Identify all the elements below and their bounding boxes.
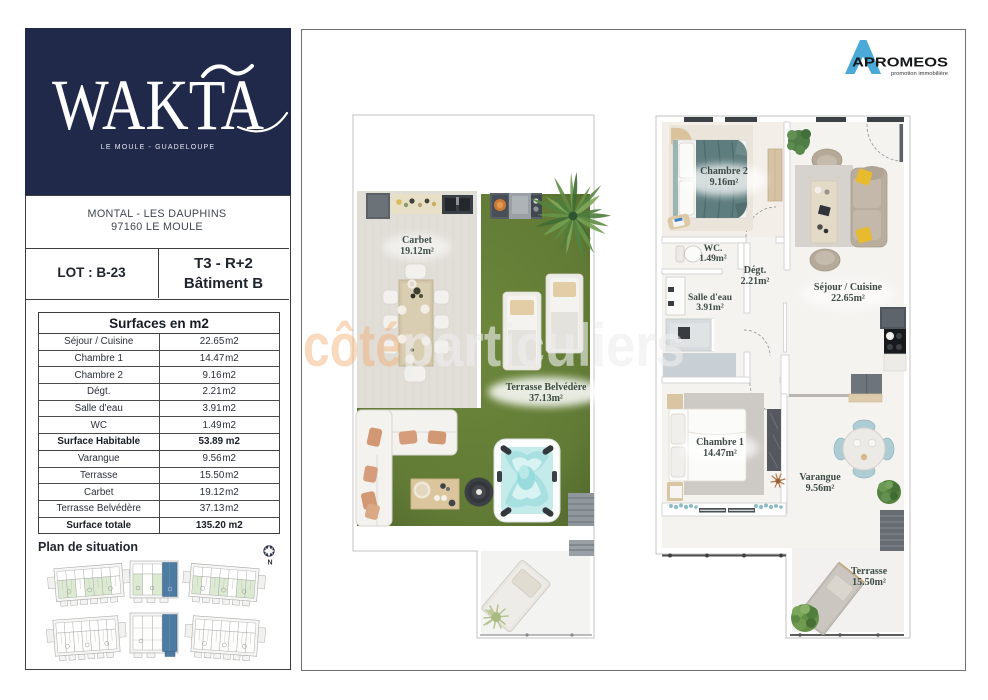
svg-text:Dégt.: Dégt. [744, 265, 767, 276]
svg-text:Terrasse: Terrasse [851, 566, 888, 577]
svg-text:côtéparticuliers: côtéparticuliers [303, 312, 685, 379]
svg-text:37.13m²: 37.13m² [529, 393, 563, 404]
svg-text:9.16m²: 9.16m² [710, 177, 739, 188]
svg-text:APROMEOS: APROMEOS [852, 56, 948, 70]
svg-text:Terrasse Belvédère: Terrasse Belvédère [506, 382, 587, 393]
svg-text:Salle d'eau: Salle d'eau [688, 293, 733, 303]
svg-text:Carbet: Carbet [402, 235, 433, 246]
svg-text:promotion immobilière: promotion immobilière [891, 71, 948, 77]
svg-text:Varangue: Varangue [799, 472, 841, 483]
svg-text:1.49m²: 1.49m² [699, 254, 727, 264]
svg-text:Séjour / Cuisine: Séjour / Cuisine [814, 282, 883, 293]
svg-text:2.21m²: 2.21m² [741, 276, 770, 287]
svg-text:19.12m²: 19.12m² [400, 246, 434, 257]
svg-text:9.56m²: 9.56m² [806, 483, 835, 494]
svg-text:Chambre 2: Chambre 2 [700, 166, 748, 177]
svg-text:N: N [267, 560, 272, 567]
svg-text:14.47m²: 14.47m² [703, 448, 737, 459]
svg-text:15.50m²: 15.50m² [852, 577, 886, 588]
svg-text:WC.: WC. [704, 244, 723, 254]
svg-text:Chambre 1: Chambre 1 [696, 437, 744, 448]
svg-text:22.65m²: 22.65m² [831, 293, 865, 304]
svg-text:3.91m²: 3.91m² [696, 303, 724, 313]
